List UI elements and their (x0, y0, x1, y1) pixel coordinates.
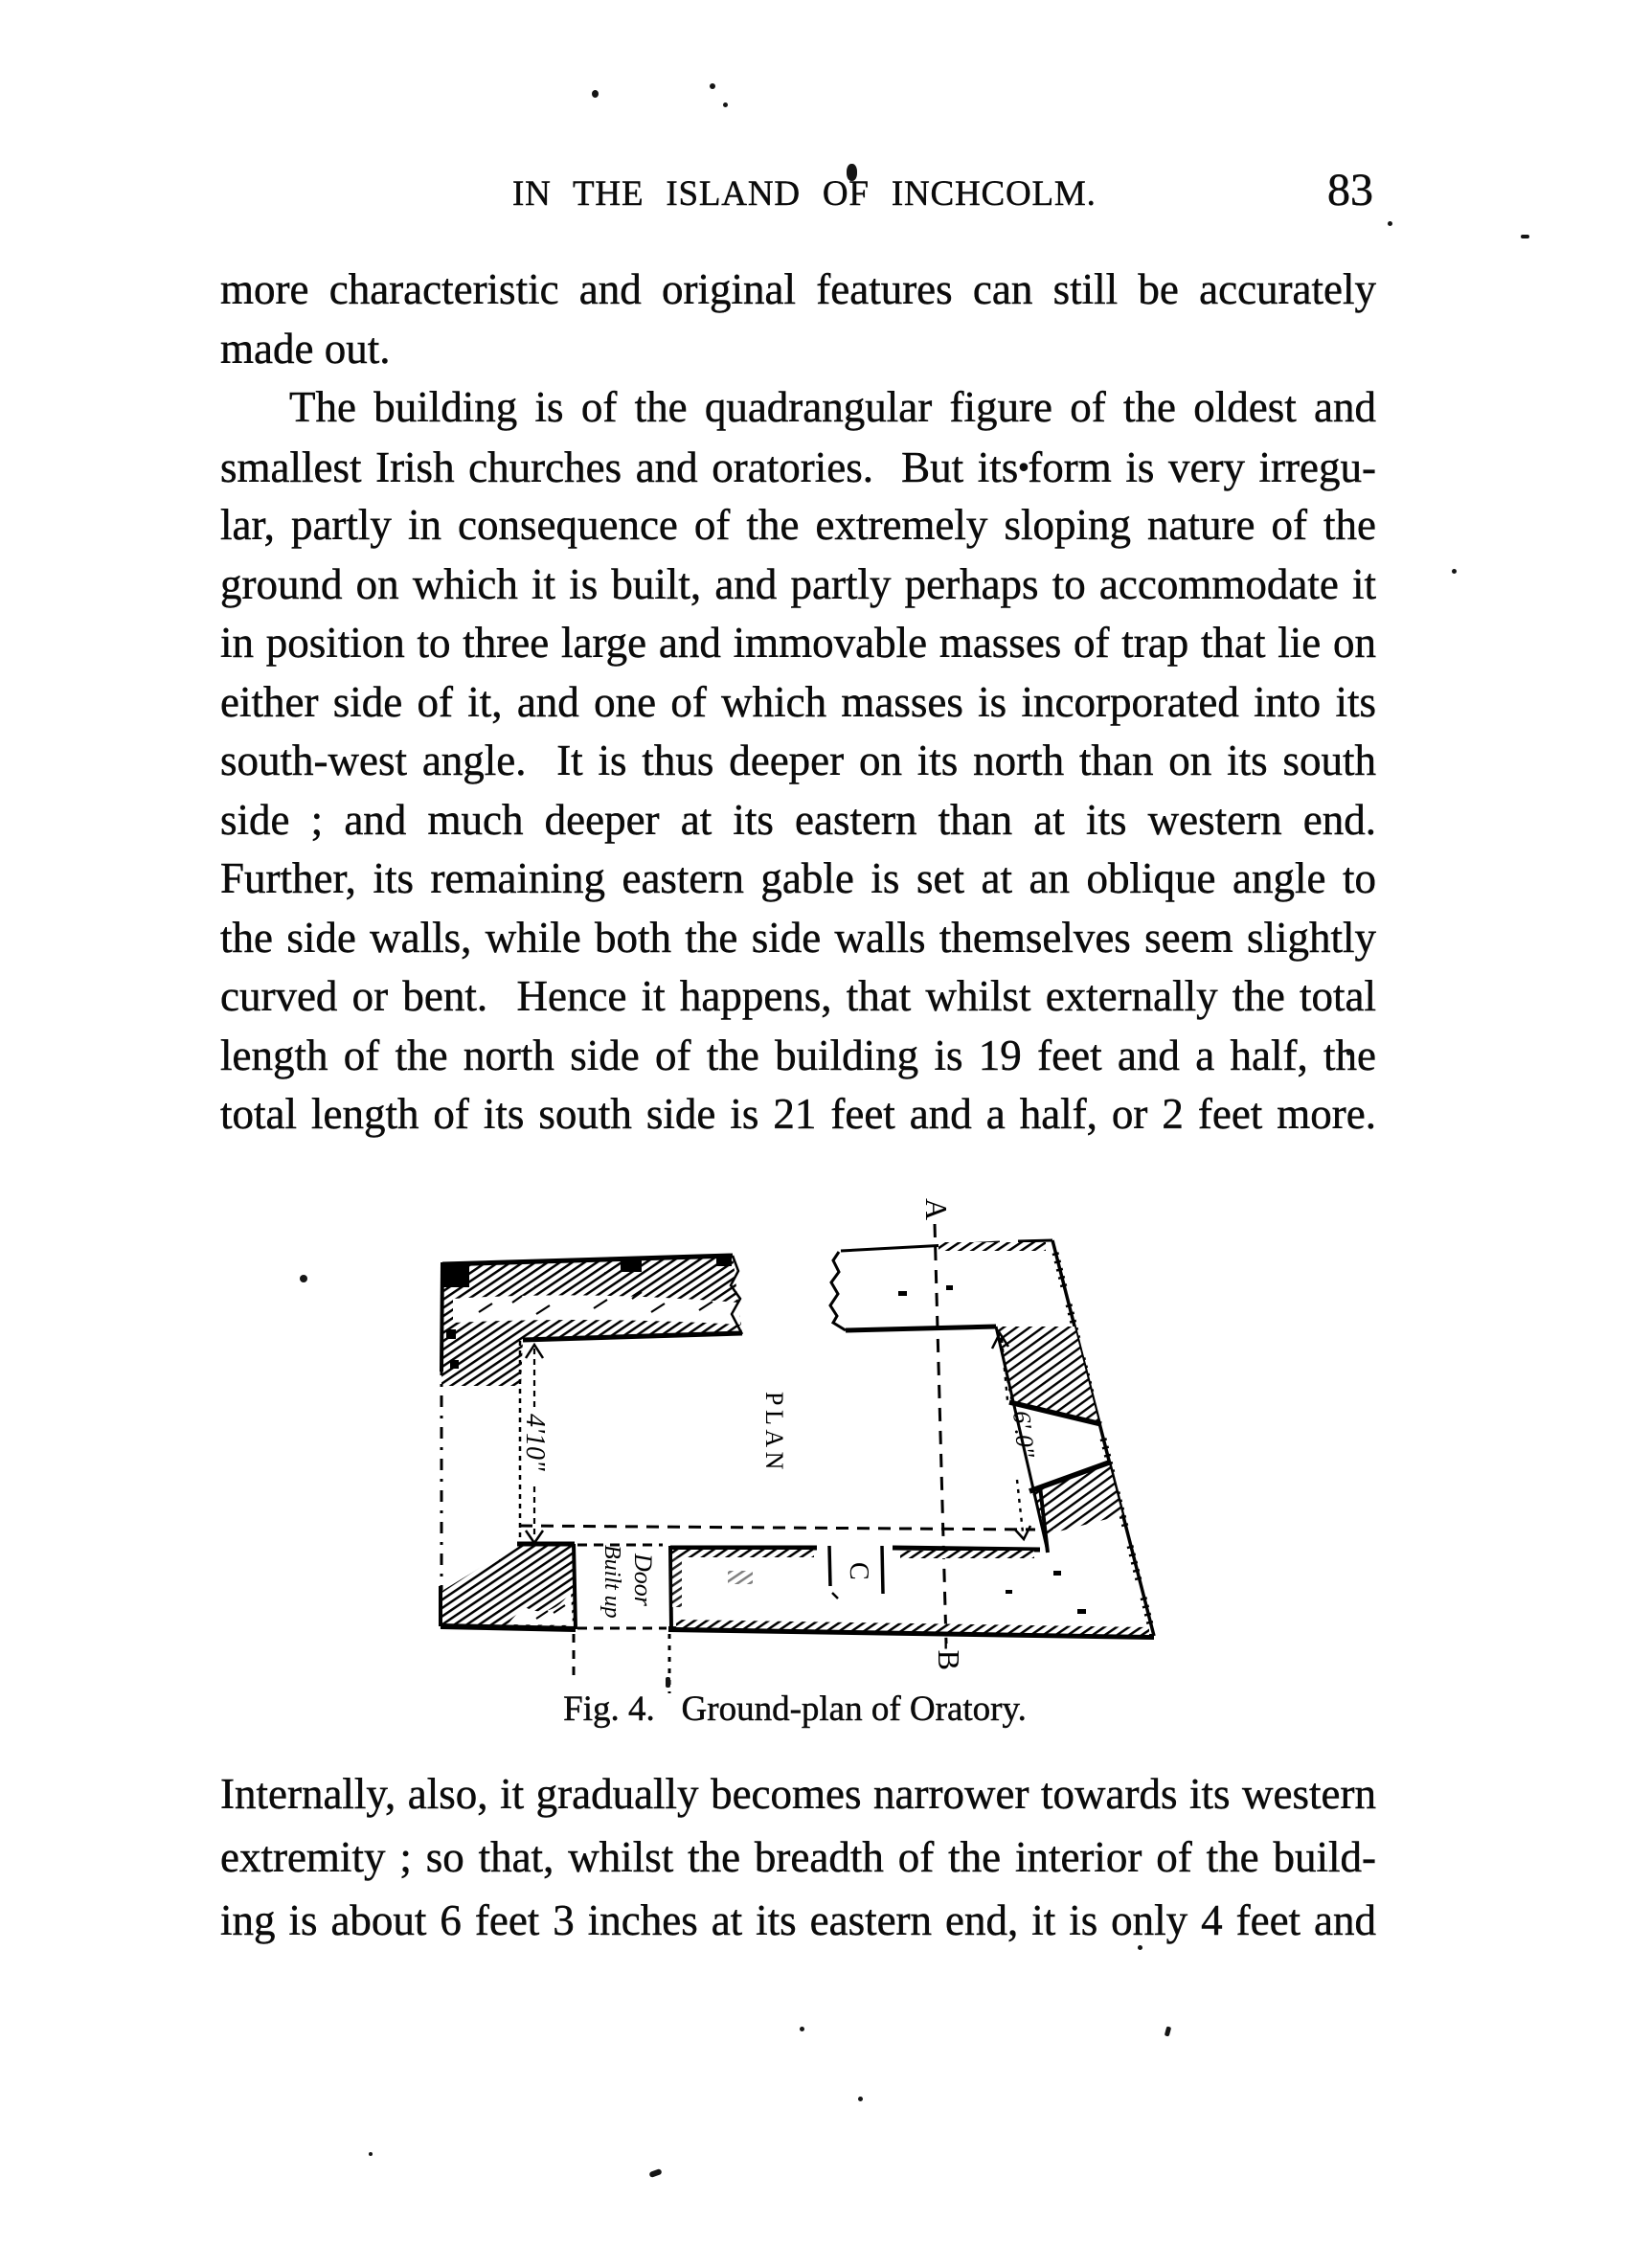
svg-text:Door: Door (629, 1553, 657, 1607)
svg-text:C: C (844, 1562, 873, 1580)
svg-text:-B: -B (932, 1640, 966, 1670)
svg-text:6'.0": 6'.0" (1007, 1410, 1040, 1460)
svg-text:A: A (919, 1198, 954, 1220)
svg-text:4'10": 4'10" (520, 1414, 550, 1471)
svg-text:PLAN: PLAN (760, 1392, 788, 1474)
svg-text:Built up: Built up (599, 1545, 624, 1619)
